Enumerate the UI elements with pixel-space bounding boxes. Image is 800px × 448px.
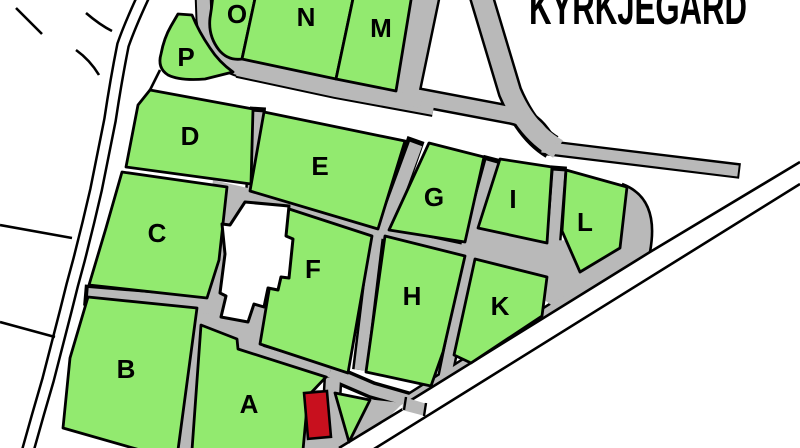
svg-text:N: N xyxy=(297,2,316,32)
svg-text:P: P xyxy=(177,42,194,72)
svg-text:E: E xyxy=(311,151,328,181)
svg-text:O: O xyxy=(227,0,247,29)
svg-text:A: A xyxy=(240,389,259,419)
svg-text:K: K xyxy=(491,291,510,321)
svg-text:F: F xyxy=(305,254,321,284)
svg-text:C: C xyxy=(148,218,167,248)
svg-text:H: H xyxy=(403,281,422,311)
svg-text:M: M xyxy=(370,13,392,43)
svg-text:B: B xyxy=(117,354,136,384)
svg-text:I: I xyxy=(509,184,516,214)
svg-text:G: G xyxy=(424,182,444,212)
svg-text:L: L xyxy=(577,207,593,237)
svg-text:D: D xyxy=(181,121,200,151)
svg-text:KYRKJEGARD: KYRKJEGARD xyxy=(529,0,747,35)
